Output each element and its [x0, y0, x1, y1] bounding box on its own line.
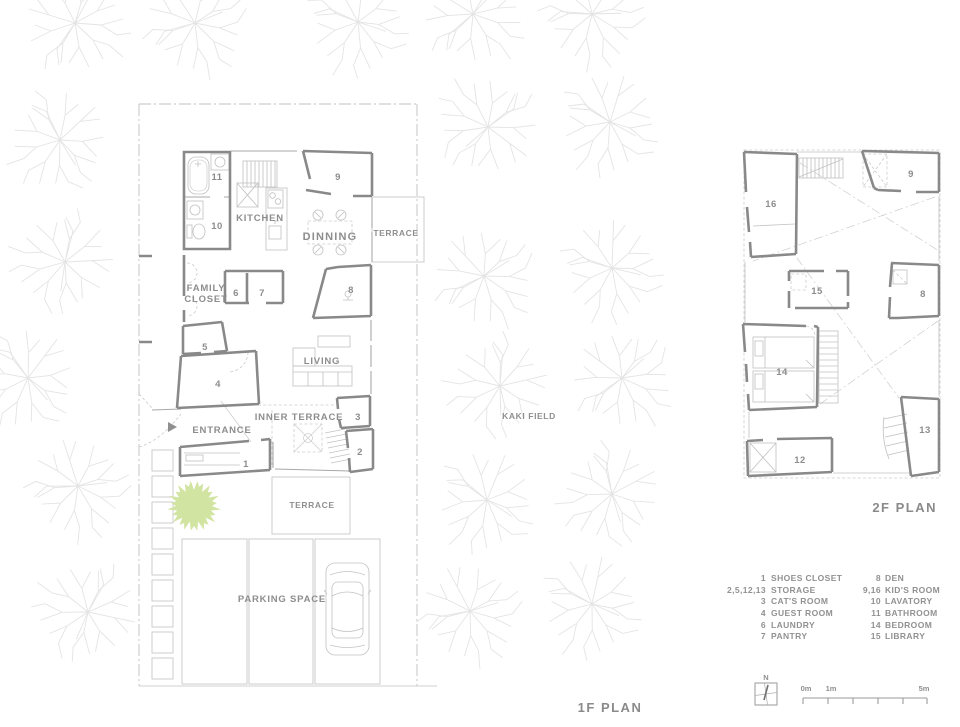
label-kitchen: KITCHEN [236, 213, 284, 224]
floor-plan-2f: 16 9 15 8 14 12 13 2F PLAN [743, 150, 940, 515]
stairs-2f-top [799, 158, 843, 178]
label-living: LIVING [304, 356, 340, 367]
legend-label: SHOES CLOSET [771, 573, 843, 583]
legend-num: 14 [871, 620, 881, 630]
garden-tree [167, 481, 221, 531]
scale-bar: 0m 1m 5m [801, 684, 930, 704]
legend-num: 9,16 [863, 585, 881, 595]
room-number-8-2f: 8 [920, 289, 926, 300]
stairs-1f [237, 161, 277, 207]
scale-5m: 5m [919, 684, 930, 693]
room-number-5: 5 [202, 342, 208, 353]
legend-label: BEDROOM [885, 620, 932, 630]
label-closet: CLOSET [184, 294, 227, 305]
floor-plan-sheet: 11 10 KITCHEN 9 DINNING TERRACE FAMILY C… [0, 0, 960, 727]
legend-num: 11 [871, 608, 881, 618]
legend-label: LAVATORY [885, 596, 933, 606]
north-label: N [763, 673, 768, 682]
legend-num: 4 [761, 608, 766, 618]
scale-0m: 0m [801, 684, 812, 693]
label-family: FAMILY [187, 283, 226, 294]
room-number-8: 8 [348, 285, 354, 296]
car [324, 563, 371, 655]
room-number-9-2f: 9 [908, 169, 914, 180]
room-number-10: 10 [211, 221, 223, 232]
legend-num: 8 [876, 573, 881, 583]
north-arrow: N [754, 673, 779, 706]
legend-num: 2,5,12,13 [727, 585, 766, 595]
room-number-14: 14 [776, 367, 788, 378]
closet-room12 [750, 443, 776, 472]
room-number-2: 2 [357, 447, 363, 458]
legend-label: KID'S ROOM [885, 585, 940, 595]
room-number-9: 9 [335, 172, 341, 183]
legend-num: 7 [761, 631, 766, 641]
room-number-7: 7 [259, 288, 265, 299]
closet-marks-room9-2f [863, 154, 887, 187]
legend-label: BATHROOM [885, 608, 938, 618]
room-number-6: 6 [233, 288, 239, 299]
label-terrace-east: TERRACE [373, 228, 418, 238]
den-desk-2f [893, 270, 907, 284]
room-number-1: 1 [243, 459, 249, 470]
door-swing-bedroom [806, 326, 815, 336]
label-entrance: ENTRANCE [192, 425, 251, 436]
legend-label: PANTRY [771, 631, 807, 641]
scale-1m: 1m [826, 684, 837, 693]
background-trees [0, 0, 691, 683]
fence-stub-walls [139, 256, 152, 342]
door-swing-room4 [228, 352, 248, 372]
shoes-closet-shelves [184, 453, 240, 465]
label-parking: PARKING SPACE [238, 594, 326, 605]
title-1f-plan: 1F PLAN [578, 700, 643, 715]
label-dinning: DINNING [303, 231, 358, 243]
room-number-13: 13 [919, 425, 931, 436]
legend: 1 2,5,12,13 3 4 6 7 8 9,16 10 11 14 15 S… [727, 573, 940, 641]
legend-num: 15 [871, 631, 881, 641]
legend-num: 1 [761, 573, 766, 583]
stepping-stones [152, 450, 173, 679]
label-terrace-south: TERRACE [289, 500, 334, 510]
entrance-approach [139, 394, 181, 447]
legend-label: LAUNDRY [771, 620, 815, 630]
room-number-3: 3 [355, 412, 361, 423]
kids-room-divider [753, 224, 795, 226]
room-number-16: 16 [765, 199, 777, 210]
plan-drawing: 11 10 KITCHEN 9 DINNING TERRACE FAMILY C… [0, 0, 960, 727]
library-fittings [791, 274, 806, 290]
legend-num: 10 [871, 596, 881, 606]
room-number-11: 11 [211, 172, 222, 183]
legend-label: STORAGE [771, 585, 816, 595]
parking-bays [182, 539, 380, 684]
legend-num: 6 [761, 620, 766, 630]
stairs-2f-mid [819, 331, 838, 403]
legend-label: GUEST ROOM [771, 608, 833, 618]
title-2f-plan: 2F PLAN [872, 500, 937, 515]
floor-plan-1f: 11 10 KITCHEN 9 DINNING TERRACE FAMILY C… [139, 151, 642, 715]
legend-num: 3 [761, 596, 766, 606]
legend-label: CAT'S ROOM [771, 596, 828, 606]
legend-label: LIBRARY [885, 631, 925, 641]
label-kaki-field: KAKI FIELD [502, 411, 556, 421]
room-number-4: 4 [215, 379, 221, 390]
room-number-15: 15 [811, 286, 823, 297]
label-inner-terrace: INNER TERRACE [255, 412, 344, 423]
room-number-12: 12 [794, 455, 806, 466]
legend-label: DEN [885, 573, 904, 583]
